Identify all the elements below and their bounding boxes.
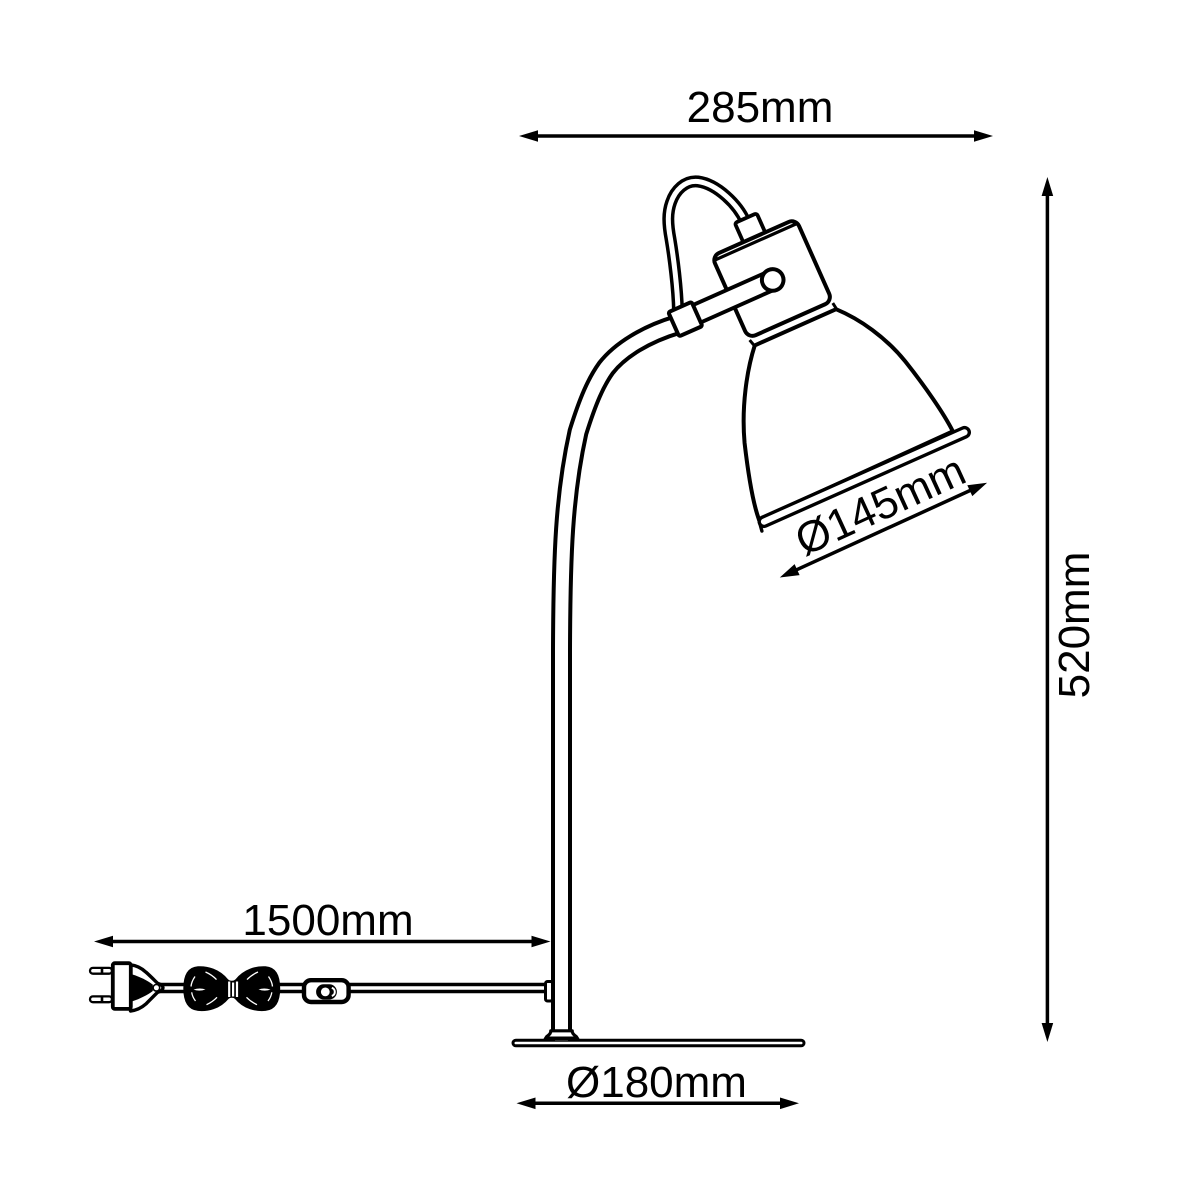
svg-text:285mm: 285mm <box>687 83 834 132</box>
svg-text:520mm: 520mm <box>1050 552 1099 699</box>
svg-text:Ø180mm: Ø180mm <box>566 1058 747 1107</box>
svg-text:1500mm: 1500mm <box>242 896 413 945</box>
